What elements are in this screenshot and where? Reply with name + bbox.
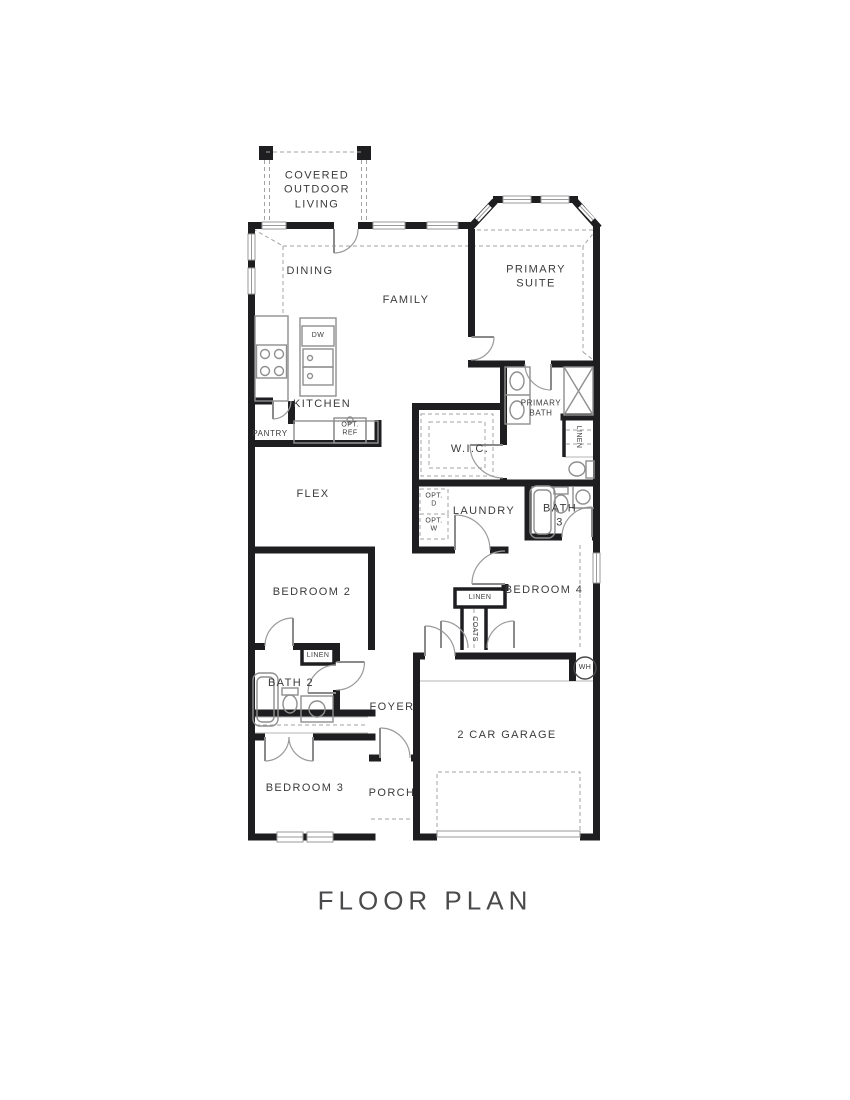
page-title: FLOOR PLAN [318, 886, 533, 917]
label-wh: WH [579, 664, 591, 672]
kitchen-island [300, 318, 336, 396]
label-porch: PORCH [369, 786, 416, 800]
label-family: FAMILY [383, 293, 430, 307]
label-dw: DW [312, 332, 324, 340]
label-foyer: FOYER [370, 700, 415, 714]
label-bath3: BATH 3 [543, 502, 577, 531]
bath2-vanity [301, 696, 333, 722]
label-pantry: PANTRY [252, 429, 287, 439]
label-bath2: BATH 2 [268, 676, 314, 690]
label-primary-bath: PRIMARY BATH [521, 399, 562, 420]
label-opt-w: OPT. W [425, 518, 442, 535]
label-linen-primary: LINEN [574, 426, 582, 449]
label-opt-ref: OPT. REF [341, 422, 358, 439]
label-opt-d: OPT. D [425, 493, 442, 510]
label-wic: W.I.C. [451, 442, 489, 456]
label-covered-outdoor-living: COVERED OUTDOOR LIVING [284, 169, 350, 212]
label-laundry: LAUNDRY [453, 504, 515, 518]
floor-plan-drawing [0, 0, 850, 1100]
sink [576, 490, 590, 504]
patio-posts [259, 146, 371, 160]
label-garage: 2 CAR GARAGE [457, 728, 556, 742]
toilet-tank [554, 487, 568, 494]
label-flex: FLEX [296, 487, 329, 501]
label-bedroom3: BEDROOM 3 [266, 781, 345, 795]
label-dining: DINING [287, 264, 334, 278]
garage-door [437, 831, 580, 837]
kitchen-counter [255, 316, 288, 401]
label-kitchen: KITCHEN [293, 397, 351, 411]
label-coats: COATS [470, 616, 478, 642]
toilet [569, 462, 585, 476]
sink [510, 372, 524, 390]
label-bedroom2: BEDROOM 2 [273, 585, 352, 599]
label-linen-hall: LINEN [469, 594, 492, 602]
label-linen-bath2: LINEN [307, 652, 330, 660]
toilet-tank [586, 461, 594, 478]
label-bedroom4: BEDROOM 4 [505, 583, 584, 597]
floor-plan-page: COVERED OUTDOOR LIVING DINING FAMILY PRI… [0, 0, 850, 1100]
label-primary-suite: PRIMARY SUITE [506, 263, 566, 292]
